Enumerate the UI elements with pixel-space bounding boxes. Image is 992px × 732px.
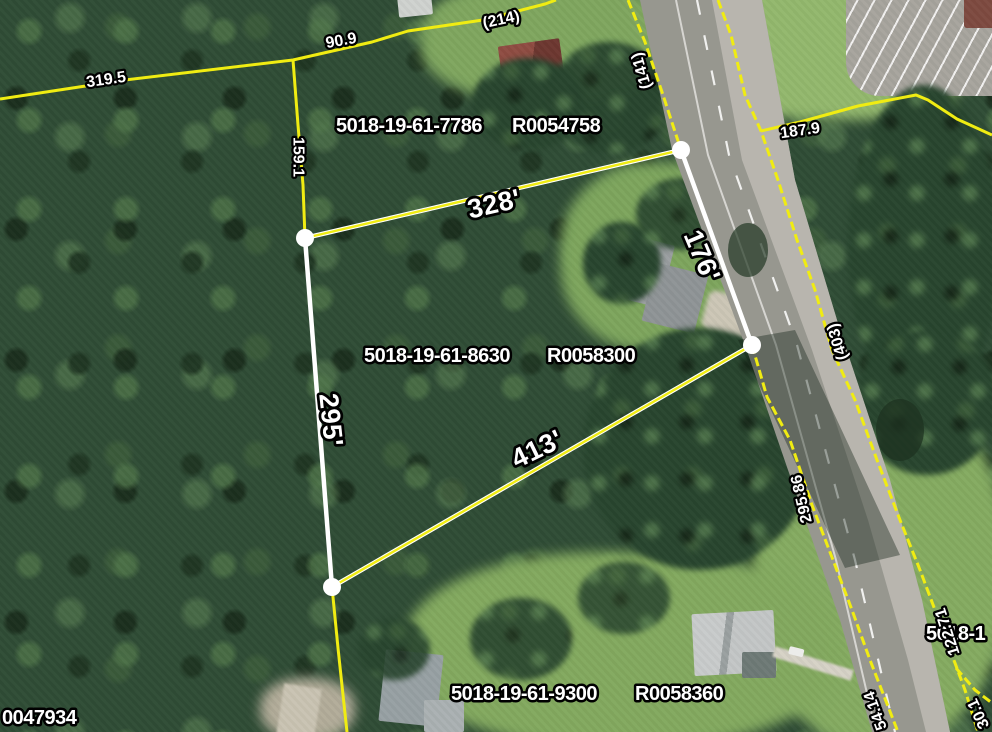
parcel-reid-label: R0054758 [512, 115, 601, 137]
parcel-pin-label: 5018-19-61-8630 [364, 345, 510, 367]
parcel-vertex-marker[interactable] [296, 229, 314, 247]
measurement-label: (214) [481, 8, 521, 32]
map-canvas[interactable]: 5018-19-61-7786 R0054758 5018-19-61-8630… [0, 0, 992, 732]
parcel-vertex-marker[interactable] [323, 578, 341, 596]
map-overlay: 5018-19-61-7786 R0054758 5018-19-61-8630… [0, 0, 992, 732]
measurement-label: 90.9 [324, 30, 358, 52]
parcel-pin-label: 5018-19-61-9300 [451, 683, 597, 705]
boundary-line-south [332, 587, 347, 732]
edge-length-label: 295' [313, 392, 348, 448]
parcel-pin-label: 5018-19-61-7786 [336, 115, 482, 137]
measurement-label: 319.5 [85, 69, 127, 91]
parcel-vertex-marker[interactable] [672, 141, 690, 159]
boundary-line-southeast-spur [956, 668, 992, 703]
shared-boundary-southeast [332, 345, 752, 587]
parcel-reid-label: R0058360 [635, 683, 724, 705]
parcel-vertex-marker[interactable] [743, 336, 761, 354]
selected-parcel-outline[interactable] [305, 150, 752, 587]
parcel-reid-label: R0058300 [547, 345, 636, 367]
edge-length-label: 328' [465, 183, 524, 224]
measurement-label: 187.9 [779, 120, 821, 142]
boundary-line-northwest [0, 0, 556, 99]
car-on-road [788, 646, 804, 657]
tree-overhang [876, 399, 924, 461]
tree-overhang [728, 223, 768, 277]
road-shoulder [712, 0, 950, 732]
measurement-label: 159.1 [290, 137, 307, 177]
measurement-label: (141) [629, 50, 656, 91]
parcel-reid-label-partial: 0047934 [2, 707, 78, 729]
